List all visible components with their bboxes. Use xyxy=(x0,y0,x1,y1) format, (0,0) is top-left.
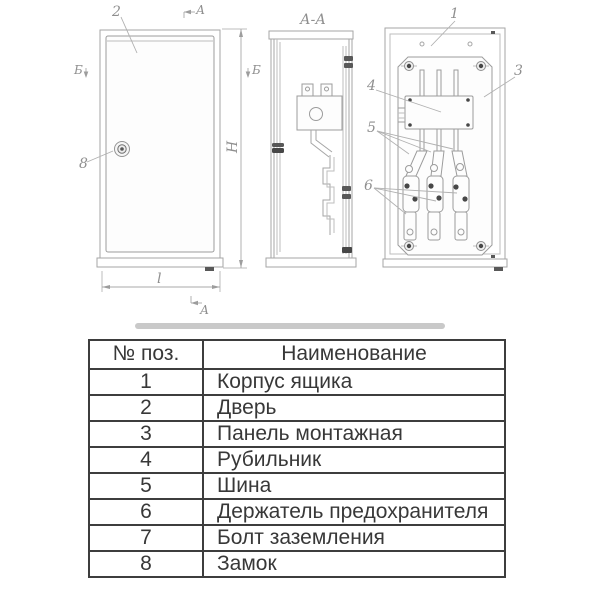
cabinet-sill xyxy=(97,258,223,267)
part-name: Дверь xyxy=(203,395,505,421)
dimension-width: l xyxy=(102,271,220,292)
switch-section xyxy=(297,84,342,157)
section-top-wall xyxy=(269,31,353,39)
dimension-width-label: l xyxy=(157,271,161,287)
part-number: 2 xyxy=(89,395,203,421)
header-position: № поз. xyxy=(89,340,203,369)
header-name: Наименование xyxy=(203,340,505,369)
part-name: Панель монтажная xyxy=(203,421,505,447)
page: { "drawing": { "section_title": "А-А", "… xyxy=(0,0,600,600)
part-number: 4 xyxy=(89,447,203,473)
callout-8: 8 xyxy=(79,156,88,172)
drawing-bottom-shadow xyxy=(135,323,445,329)
table-row: 5 Шина xyxy=(89,473,505,499)
bus-bolt xyxy=(342,194,351,199)
parts-table: № поз. Наименование 1 Корпус ящика 2 Две… xyxy=(88,339,506,578)
part-number: 8 xyxy=(89,551,203,577)
callout-6: 6 xyxy=(364,178,373,194)
rear-foot xyxy=(494,267,503,271)
table-row: 8 Замок xyxy=(89,551,505,577)
front-view: 2 8 А А Б Б xyxy=(73,3,261,317)
panel-bolt xyxy=(344,56,353,61)
section-sill xyxy=(266,258,356,267)
table-row: 2 Дверь xyxy=(89,395,505,421)
rear-sill xyxy=(383,259,507,267)
part-name: Замок xyxy=(203,551,505,577)
section-mark-a-bottom: А xyxy=(191,296,209,317)
table-row: 6 Держатель предохранителя xyxy=(89,499,505,525)
table-row: 3 Панель монтажная xyxy=(89,421,505,447)
small-bolt xyxy=(491,255,495,258)
view-mark-b-left: Б xyxy=(73,63,88,78)
part-name: Болт заземления xyxy=(203,525,505,551)
table-header-row: № поз. Наименование xyxy=(89,340,505,369)
cabinet-foot xyxy=(205,267,214,271)
view-mark-b-right: Б xyxy=(246,63,261,78)
part-number: 7 xyxy=(89,525,203,551)
bus-bolt xyxy=(342,186,351,191)
small-bolt xyxy=(491,31,495,34)
table-row: 4 Рубильник xyxy=(89,447,505,473)
view-mark-b-right-label: Б xyxy=(251,63,261,77)
callout-3: 3 xyxy=(514,63,523,79)
table-row: 1 Корпус ящика xyxy=(89,369,505,395)
section-mark-a-top-label: А xyxy=(195,3,205,17)
part-number: 1 xyxy=(89,369,203,395)
callout-1: 1 xyxy=(450,6,459,22)
section-mark-a-bottom-label: А xyxy=(199,303,209,317)
door-lock-icon xyxy=(115,142,130,157)
callout-2: 2 xyxy=(111,4,121,20)
part-name: Рубильник xyxy=(203,447,505,473)
section-view: А-А xyxy=(266,12,356,267)
lock-section xyxy=(272,143,284,153)
dimension-height: Н xyxy=(222,29,247,268)
section-mark-a-top: А xyxy=(184,3,205,18)
busbar-section xyxy=(323,155,334,235)
ground-bolt xyxy=(342,247,352,253)
view-mark-b-left-label: Б xyxy=(73,63,83,77)
table-row: 7 Болт заземления xyxy=(89,525,505,551)
section-view-title: А-А xyxy=(299,12,326,28)
callout-4: 4 xyxy=(366,78,376,94)
panel-bolt xyxy=(344,63,353,68)
rear-view: 1 3 4 5 6 xyxy=(364,6,523,271)
part-name: Держатель предохранителя xyxy=(203,499,505,525)
callout-5: 5 xyxy=(367,120,376,136)
technical-drawing: 2 8 А А Б Б xyxy=(0,0,600,332)
part-name: Корпус ящика xyxy=(203,369,505,395)
dimension-height-label: Н xyxy=(225,140,241,154)
part-name: Шина xyxy=(203,473,505,499)
part-number: 3 xyxy=(89,421,203,447)
part-number: 5 xyxy=(89,473,203,499)
part-number: 6 xyxy=(89,499,203,525)
